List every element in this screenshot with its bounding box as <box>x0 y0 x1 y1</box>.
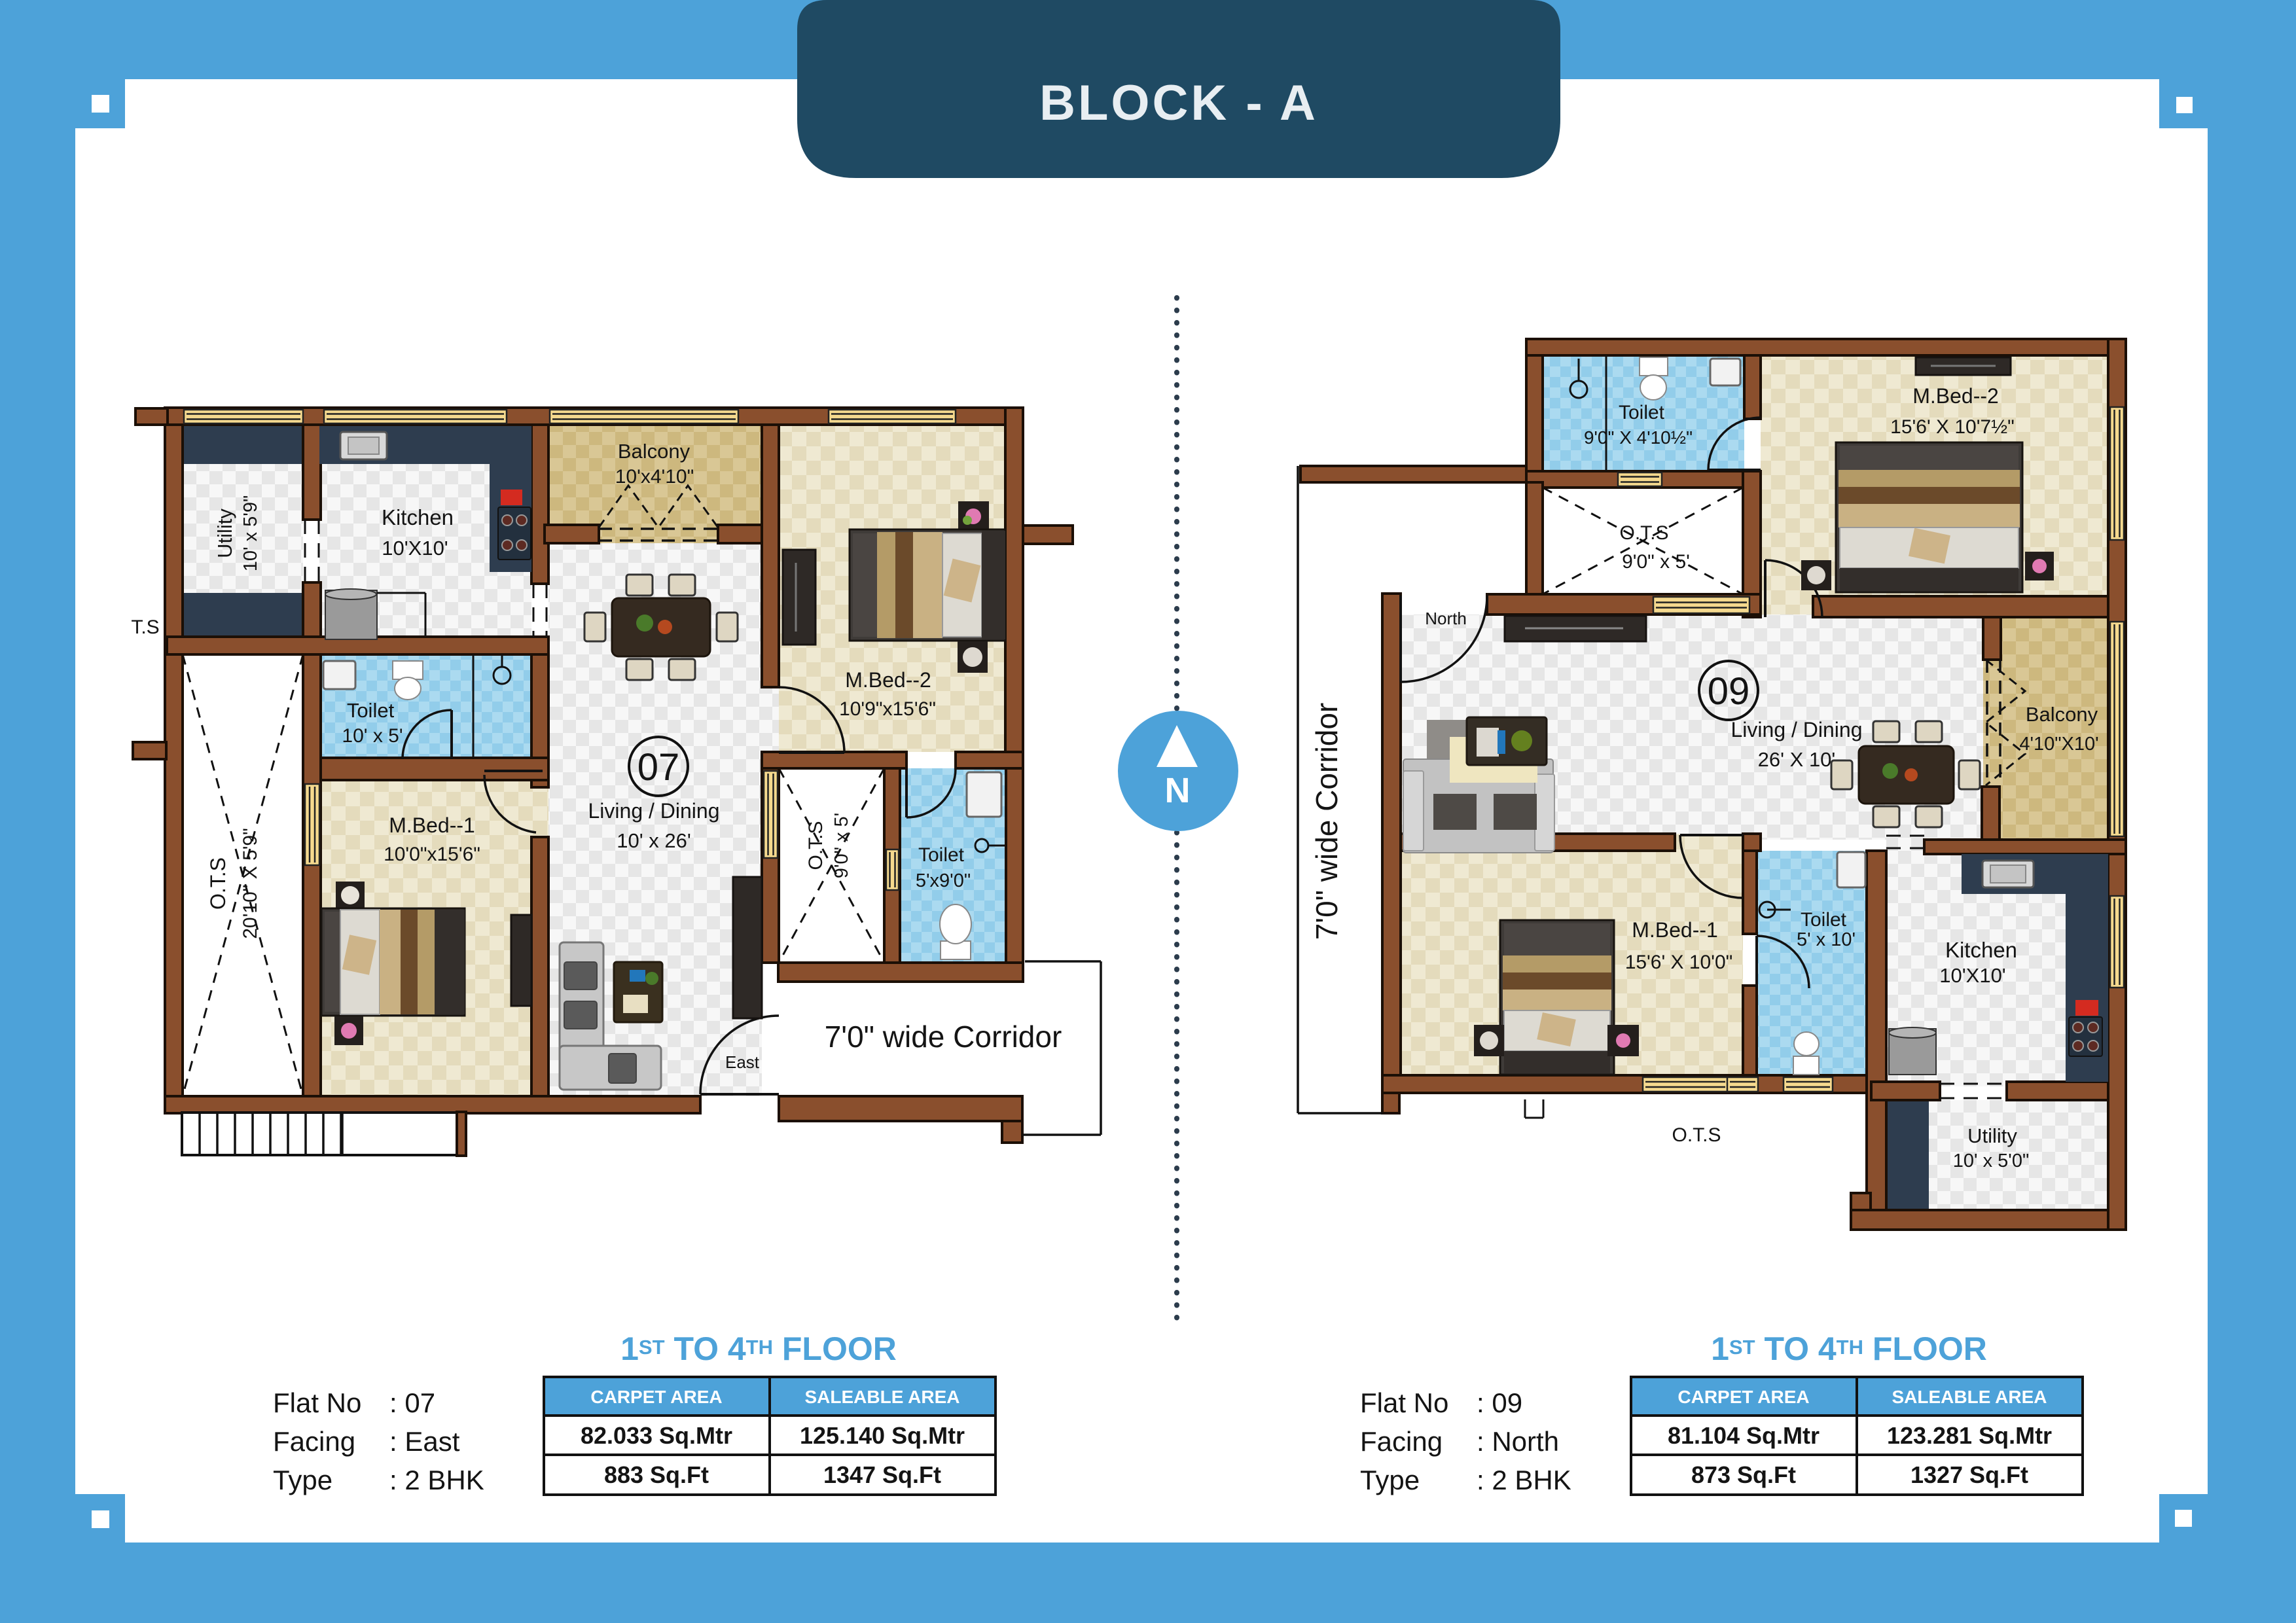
svg-text:N: N <box>1165 771 1191 810</box>
svg-text:Kitchen: Kitchen <box>1945 938 2017 962</box>
svg-text:10'9"x15'6": 10'9"x15'6" <box>839 698 936 720</box>
svg-text:82.033 Sq.Mtr: 82.033 Sq.Mtr <box>581 1422 732 1449</box>
svg-text:09: 09 <box>1708 670 1750 713</box>
svg-text:Balcony: Balcony <box>618 440 691 463</box>
svg-text:CARPET AREA: CARPET AREA <box>1677 1387 1809 1407</box>
svg-text:Flat No: Flat No <box>273 1387 361 1418</box>
svg-text:1327 Sq.Ft: 1327 Sq.Ft <box>1910 1461 2028 1488</box>
svg-text:O.T.S: O.T.S <box>1672 1124 1721 1146</box>
svg-text:07: 07 <box>637 746 680 789</box>
svg-text:5' x 10': 5' x 10' <box>1797 929 1856 950</box>
svg-text:Toilet: Toilet <box>918 844 965 866</box>
svg-text:10'x4'10": 10'x4'10" <box>615 466 694 488</box>
svg-text:123.281 Sq.Mtr: 123.281 Sq.Mtr <box>1887 1422 2052 1449</box>
svg-text:10' x 5'9": 10' x 5'9" <box>240 495 261 572</box>
svg-text:M.Bed--2: M.Bed--2 <box>1912 384 1999 408</box>
svg-text:7'0" wide Corridor: 7'0" wide Corridor <box>1310 703 1344 940</box>
svg-text:: 07: : 07 <box>389 1387 435 1418</box>
svg-text:: 2 BHK: : 2 BHK <box>389 1465 484 1495</box>
svg-text:883 Sq.Ft: 883 Sq.Ft <box>604 1461 709 1488</box>
svg-text:7'0" wide Corridor: 7'0" wide Corridor <box>825 1020 1062 1054</box>
svg-text:M.Bed--1: M.Bed--1 <box>389 813 475 837</box>
svg-text:O.T.S: O.T.S <box>805 821 827 870</box>
svg-text:BLOCK - A: BLOCK - A <box>1039 75 1318 131</box>
svg-text:CARPET AREA: CARPET AREA <box>590 1387 722 1407</box>
svg-text:15'6' X 10'0": 15'6' X 10'0" <box>1625 952 1733 973</box>
svg-text:: 09: : 09 <box>1477 1387 1522 1418</box>
svg-text:5'x9'0": 5'x9'0" <box>916 870 971 891</box>
svg-text:O.T.S: O.T.S <box>1619 522 1668 544</box>
svg-text:: 2 BHK: : 2 BHK <box>1477 1465 1571 1495</box>
svg-text:Type: Type <box>1360 1465 1420 1495</box>
svg-text:O.T.S: O.T.S <box>206 857 230 910</box>
svg-text:North: North <box>1425 609 1467 628</box>
svg-text:10' x 26': 10' x 26' <box>617 829 691 852</box>
svg-text:9'0" x 5': 9'0" x 5' <box>1622 551 1690 573</box>
svg-text:15'6' X 10'7½": 15'6' X 10'7½" <box>1890 416 2015 438</box>
svg-text:Type: Type <box>273 1465 332 1495</box>
svg-text:M.Bed--1: M.Bed--1 <box>1632 918 1718 942</box>
svg-text:10'0"x15'6": 10'0"x15'6" <box>384 844 480 865</box>
svg-text:Facing: Facing <box>1360 1426 1443 1457</box>
svg-text:873 Sq.Ft: 873 Sq.Ft <box>1691 1461 1796 1488</box>
svg-text:Living / Dining: Living / Dining <box>588 799 720 823</box>
svg-text:East: East <box>725 1052 760 1072</box>
svg-text:1347 Sq.Ft: 1347 Sq.Ft <box>823 1461 941 1488</box>
svg-text:T.S: T.S <box>131 616 159 638</box>
svg-text:20'10" X 5'9": 20'10" X 5'9" <box>240 828 261 939</box>
svg-text:Kitchen: Kitchen <box>382 505 454 529</box>
svg-text:Balcony: Balcony <box>2026 703 2098 726</box>
svg-text:Toilet: Toilet <box>1801 909 1847 931</box>
svg-text:: East: : East <box>389 1426 460 1457</box>
svg-text:Utility: Utility <box>213 508 236 558</box>
svg-text:Toilet: Toilet <box>347 699 395 722</box>
svg-text:: North: : North <box>1477 1426 1559 1457</box>
svg-text:9'0" X 4'10½": 9'0" X 4'10½" <box>1584 427 1693 448</box>
svg-text:Facing: Facing <box>273 1426 355 1457</box>
svg-text:10'X10': 10'X10' <box>382 537 448 560</box>
svg-text:10'X10': 10'X10' <box>1939 964 2005 987</box>
svg-text:SALEABLE AREA: SALEABLE AREA <box>805 1387 960 1407</box>
svg-text:26' X 10': 26' X 10' <box>1758 748 1836 771</box>
svg-text:10' x 5'0": 10' x 5'0" <box>1953 1150 2030 1171</box>
svg-text:Utility: Utility <box>1967 1124 2017 1147</box>
svg-text:Flat No: Flat No <box>1360 1387 1448 1418</box>
svg-text:M.Bed--2: M.Bed--2 <box>845 668 931 692</box>
svg-text:SALEABLE AREA: SALEABLE AREA <box>1892 1387 2047 1407</box>
svg-text:9'0" x 5': 9'0" x 5' <box>831 813 852 878</box>
svg-text:4'10"X10': 4'10"X10' <box>2019 734 2098 755</box>
svg-text:Living / Dining: Living / Dining <box>1731 718 1863 741</box>
svg-text:125.140 Sq.Mtr: 125.140 Sq.Mtr <box>800 1422 965 1449</box>
svg-text:81.104 Sq.Mtr: 81.104 Sq.Mtr <box>1668 1422 1820 1449</box>
svg-text:Toilet: Toilet <box>1619 402 1665 423</box>
svg-text:10' x 5': 10' x 5' <box>342 725 403 747</box>
